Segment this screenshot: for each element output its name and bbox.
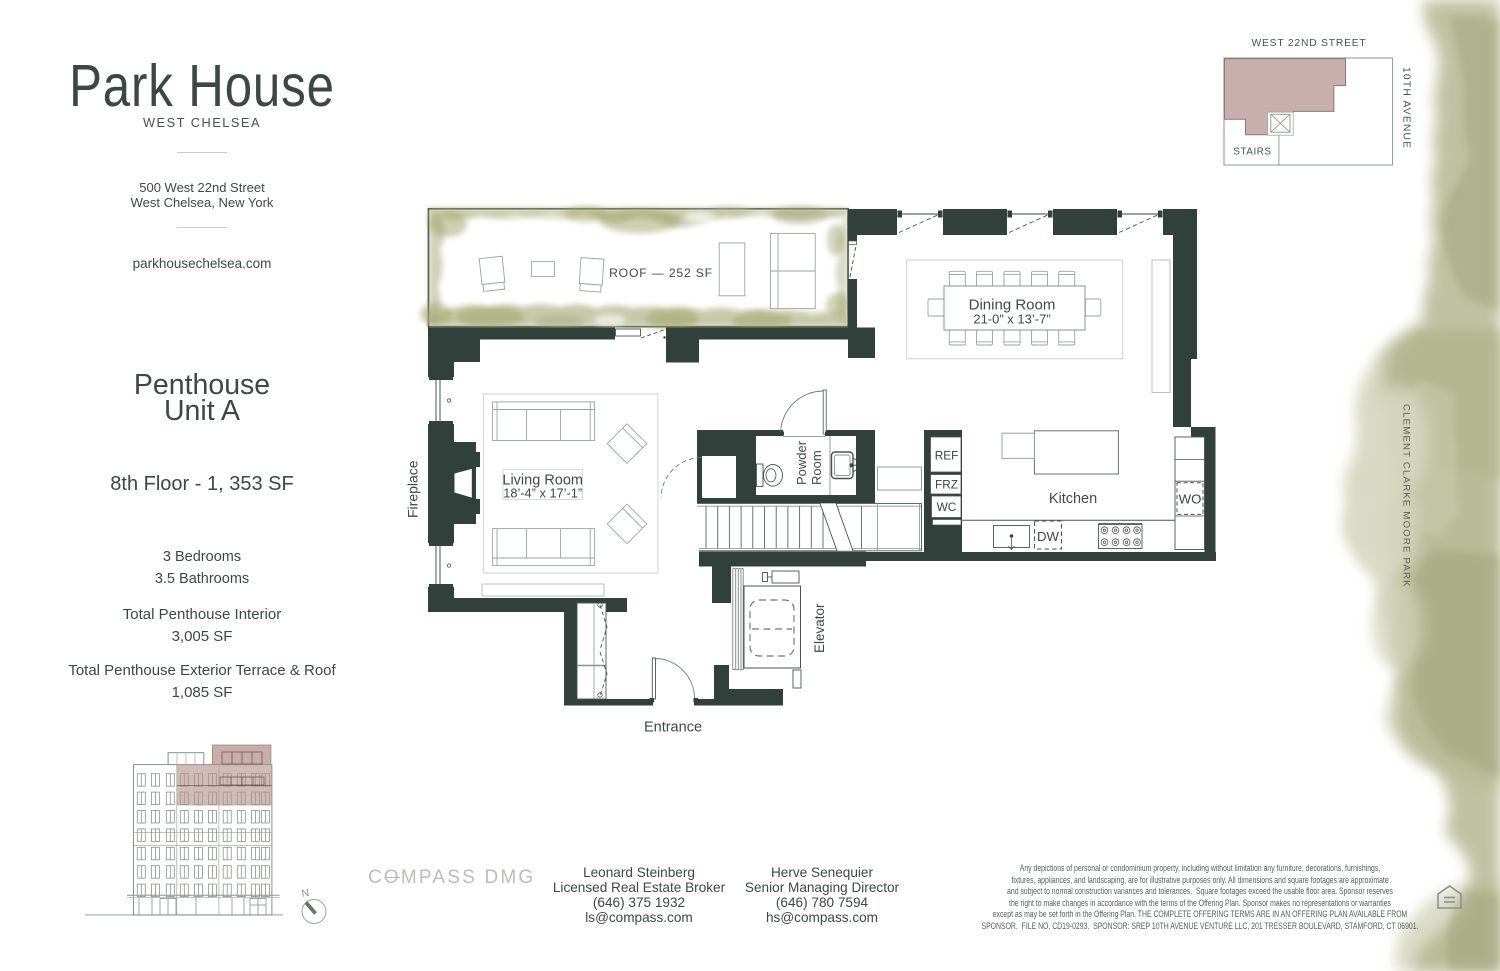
svg-text:10TH AVENUE: 10TH AVENUE bbox=[1401, 67, 1412, 149]
svg-text:N: N bbox=[301, 887, 310, 900]
svg-text:WEST 22ND STREET: WEST 22ND STREET bbox=[1251, 38, 1366, 49]
svg-text:ROOF — 252 SF: ROOF — 252 SF bbox=[609, 266, 713, 280]
svg-text:DW: DW bbox=[1037, 529, 1060, 544]
svg-text:Powder: Powder bbox=[794, 440, 809, 485]
svg-text:21-0” x 13’-7”: 21-0” x 13’-7” bbox=[973, 312, 1050, 327]
svg-text:WO: WO bbox=[1179, 492, 1202, 507]
svg-text:Entrance: Entrance bbox=[644, 720, 702, 736]
svg-text:FRZ: FRZ bbox=[935, 478, 958, 492]
svg-text:Kitchen: Kitchen bbox=[1049, 491, 1097, 507]
svg-text:18’-4” x 17’-1”: 18’-4” x 17’-1” bbox=[503, 486, 582, 501]
svg-text:Elevator: Elevator bbox=[812, 603, 827, 653]
svg-text:CLEMENT CLARKE MOORE PARK: CLEMENT CLARKE MOORE PARK bbox=[1401, 404, 1412, 588]
svg-text:Fireplace: Fireplace bbox=[405, 460, 421, 518]
svg-text:STAIRS: STAIRS bbox=[1233, 147, 1271, 158]
svg-text:REF: REF bbox=[935, 449, 959, 463]
svg-text:Room: Room bbox=[809, 450, 824, 485]
svg-text:WC: WC bbox=[937, 500, 957, 514]
